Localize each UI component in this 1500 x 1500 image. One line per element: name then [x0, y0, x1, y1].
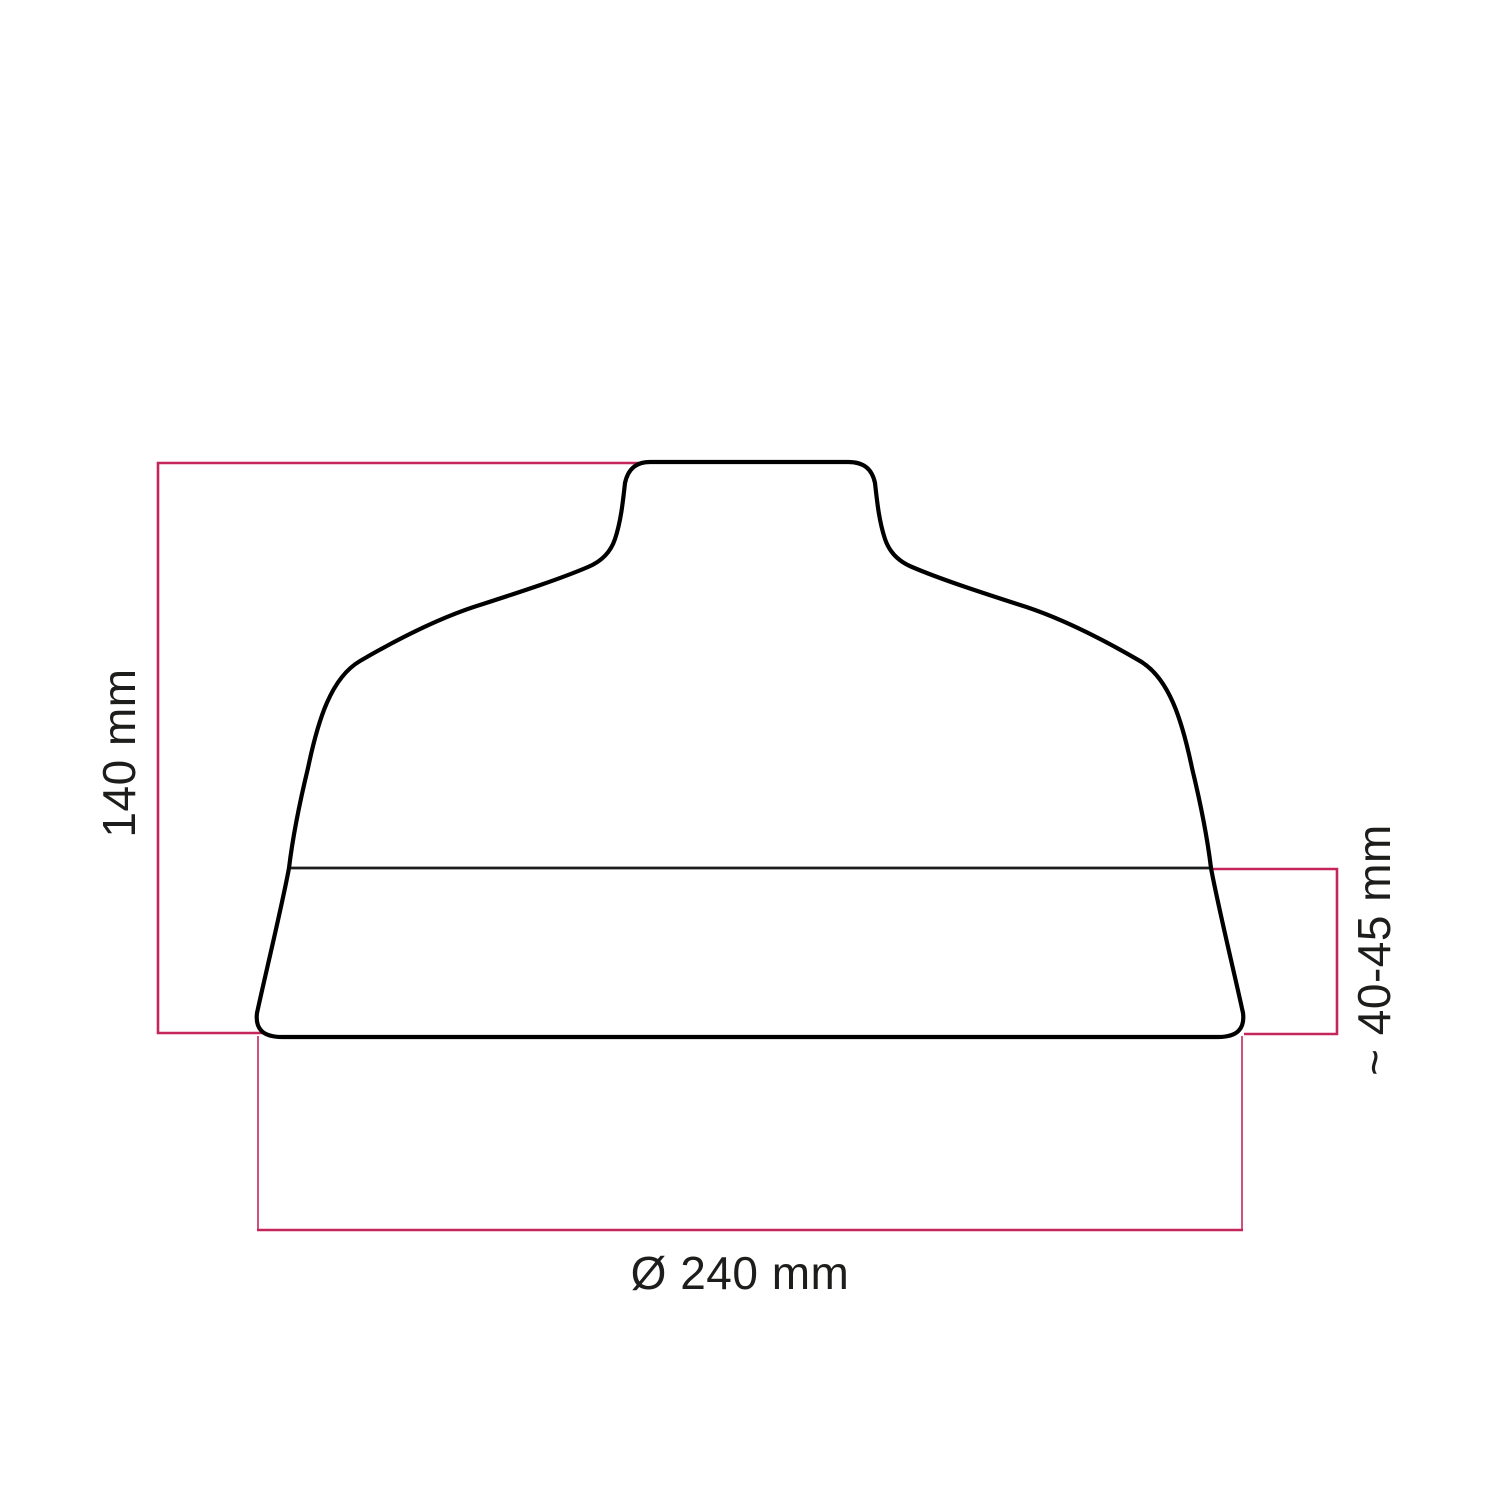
diameter-dimension-label: Ø 240 mm — [631, 1250, 850, 1296]
height-dimension-label: 140 mm — [96, 668, 142, 837]
shade-outline — [257, 462, 1244, 1037]
band-dimension-label: ~ 40-45 mm — [1351, 824, 1397, 1076]
dimension-diagram: 140 mm ~ 40-45 mm Ø 240 mm — [0, 0, 1500, 1500]
